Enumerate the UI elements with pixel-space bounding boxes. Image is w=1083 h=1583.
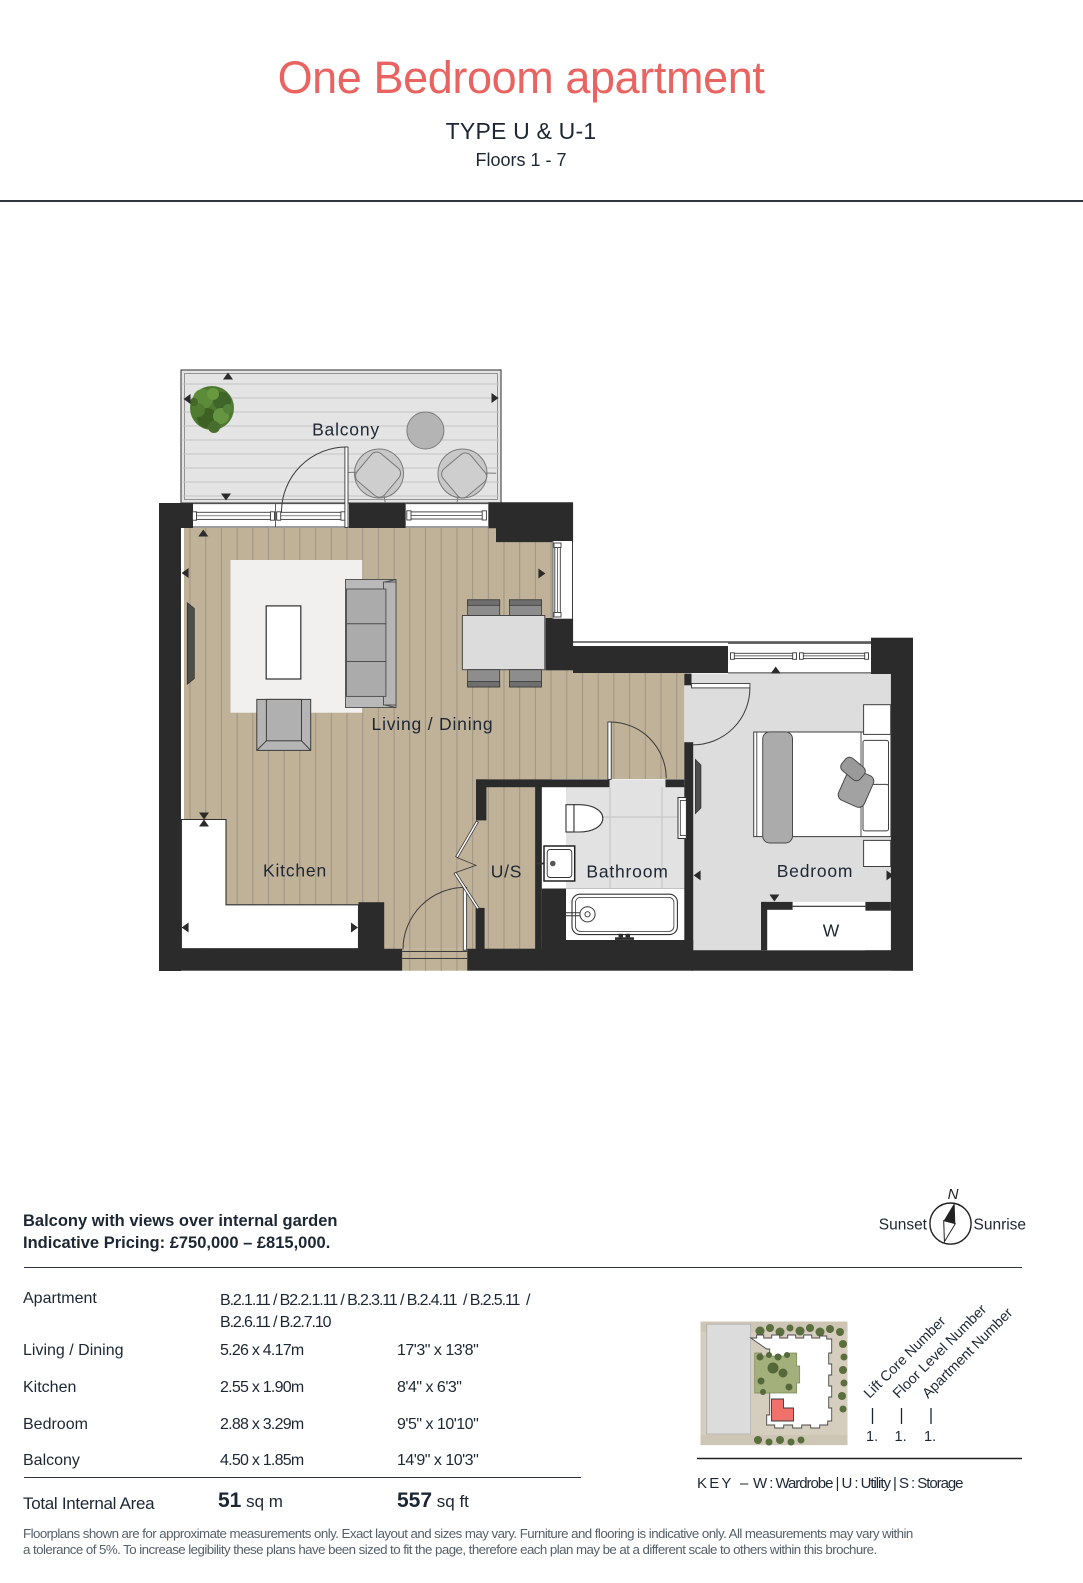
svg-text:Kitchen: Kitchen [263,861,327,881]
svg-text:1.: 1. [866,1429,878,1445]
svg-text:Balcony: Balcony [312,420,380,440]
svg-text:1.: 1. [924,1429,936,1445]
svg-text:Living / Dining: Living / Dining [372,714,494,734]
svg-text:KEY: KEY [697,1475,734,1492]
svg-text:Bathroom: Bathroom [586,862,668,882]
svg-text:N: N [948,1186,959,1203]
svg-text:Sunset: Sunset [879,1217,928,1234]
svg-text:Bedroom: Bedroom [777,861,854,881]
svg-text:W: W [823,921,840,941]
svg-text:U/S: U/S [491,862,523,882]
svg-text:–: – [740,1475,749,1492]
svg-text:Sunrise: Sunrise [974,1217,1027,1234]
svg-text:W : Wardrobe | U : Utility | S: W : Wardrobe | U : Utility | S : Storage [753,1475,963,1492]
svg-text:1.: 1. [895,1429,907,1445]
